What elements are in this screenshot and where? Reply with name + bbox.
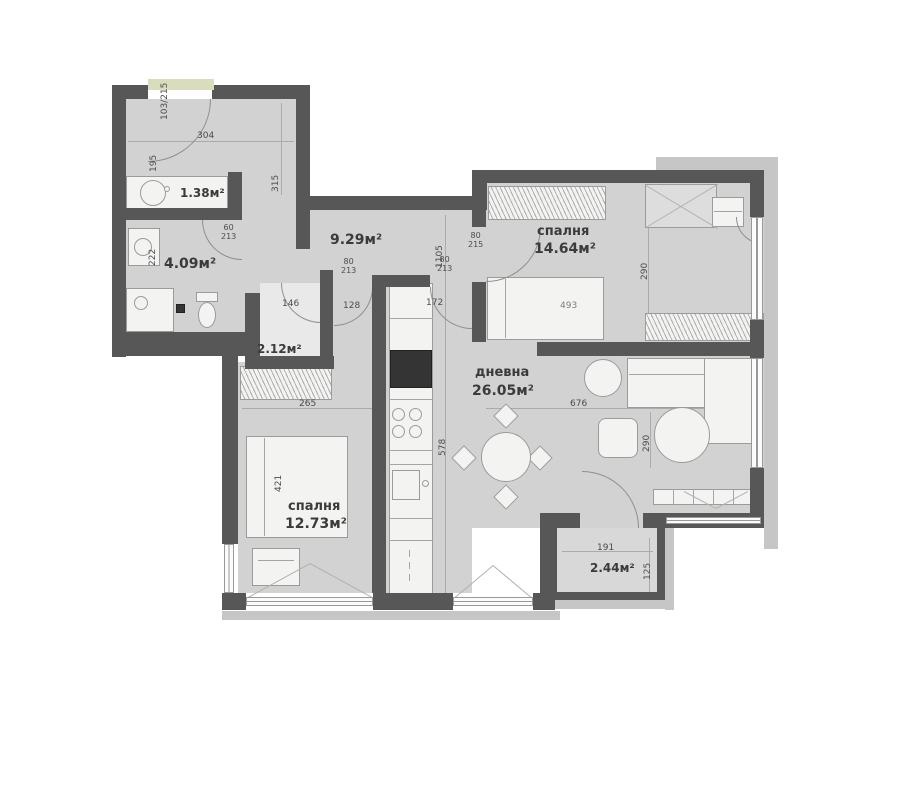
outer-band [656, 157, 778, 170]
lowboard-line [713, 489, 714, 505]
bedroom-left-area-label: 12.73м² [285, 516, 347, 532]
dimension-label: 265 [299, 400, 316, 409]
oven [390, 350, 432, 388]
dimension-label: 493 [560, 302, 577, 311]
burner-icon [409, 408, 422, 421]
wall [126, 208, 228, 220]
kitchen-wall [372, 275, 386, 593]
door-height: 213 [221, 233, 236, 241]
bed-pillow-line [264, 438, 265, 536]
wall [112, 85, 148, 99]
kitchen-sink [392, 470, 420, 500]
hallway-area-label: 9.29м² [330, 232, 382, 248]
wardrobe-strip-bedroom-right [645, 313, 764, 341]
counter-line [389, 540, 433, 541]
counter-line [389, 518, 433, 519]
bedroom-left-name-label: спалня [288, 499, 340, 514]
door-width: 80 [344, 258, 354, 266]
door-height: 215 [468, 241, 483, 249]
wall-bedroom-living-divider [537, 342, 764, 356]
window-bedroom-right [751, 217, 763, 320]
wall [643, 513, 663, 528]
window-bedroom-left [246, 597, 373, 606]
window-swing-mark [493, 565, 532, 598]
bedroom-right-name-label: спалня [537, 224, 589, 239]
wardrobe-bedroom-left [240, 366, 332, 400]
dimension-label: 191 [597, 544, 614, 553]
kitchen-counter [389, 283, 433, 596]
wall [472, 282, 486, 342]
door-size-label: 80 215 [468, 232, 483, 249]
wall [373, 593, 453, 610]
wall [112, 332, 247, 356]
wall [296, 196, 474, 210]
dimension-label: 290 [641, 263, 650, 280]
shower-tray [126, 288, 174, 332]
dimension-label: 128 [343, 302, 360, 311]
wall-pier [750, 170, 764, 217]
window-living-bottom [666, 517, 761, 524]
balcony-area-label: 2.44м² [590, 561, 635, 575]
door-width: 80 [471, 232, 481, 240]
outer-band [222, 611, 560, 620]
door-size-label: 60 213 [221, 224, 236, 241]
counter-line [389, 464, 433, 465]
sink-icon [140, 180, 166, 206]
shower-head-icon [134, 296, 148, 310]
bed-pillow-line [505, 279, 506, 338]
balcony-wall [549, 592, 665, 600]
armchair [598, 418, 638, 458]
wall [472, 170, 764, 183]
dimension-label: 146 [282, 300, 299, 309]
wall [222, 593, 246, 610]
sofa-cushion-line [629, 374, 705, 375]
bathroom-area-label: 4.09м² [164, 256, 216, 272]
coffee-table [654, 407, 710, 463]
plant-icon [584, 359, 622, 397]
dining-table [481, 432, 531, 482]
outer-band [549, 600, 674, 609]
sofa-vertical [704, 358, 754, 444]
door-size-label: 80 213 [437, 256, 452, 273]
fridge-line [389, 318, 433, 319]
burner-icon [409, 425, 422, 438]
wall [222, 338, 238, 544]
bedroom-right-area-label: 14.64м² [534, 241, 596, 257]
dimension-label: 290 [643, 435, 652, 452]
burner-icon [392, 408, 405, 421]
wall [296, 85, 310, 249]
wall [112, 85, 126, 357]
window-kitchen [453, 597, 533, 606]
lowboard-line [673, 489, 674, 505]
nightstand-line [258, 560, 294, 561]
toilet-tank [196, 292, 218, 302]
dimension-label: 578 [439, 439, 448, 456]
counter-line [389, 450, 433, 451]
counter-dash [409, 562, 410, 569]
entry-door-size-label: 103/215 [161, 83, 170, 120]
window-living [751, 358, 763, 468]
counter-dash [409, 574, 410, 581]
floor-drain-icon [176, 304, 185, 313]
entry-door-band [148, 79, 214, 90]
counter-dash [409, 550, 410, 557]
dimension-label: 315 [272, 175, 281, 192]
wall [228, 172, 242, 220]
side-table-line [714, 211, 742, 212]
burner-icon [392, 425, 405, 438]
dimension-label: 304 [197, 132, 214, 141]
door-height: 213 [437, 265, 452, 273]
dimension-label: 421 [275, 475, 284, 492]
door-width: 60 [224, 224, 234, 232]
outer-band [665, 528, 674, 610]
toilet-bowl-icon [198, 302, 216, 328]
wall [472, 183, 486, 227]
living-name-label: дневна [475, 365, 529, 380]
door-size-label: 80 213 [341, 258, 356, 275]
window-bedroom-left-side [224, 544, 234, 593]
wc-area-label: 1.38м² [180, 186, 225, 200]
dimension-label: 676 [570, 400, 587, 409]
dimension-label: 195 [150, 155, 159, 172]
dimension-label: 172 [426, 299, 443, 308]
wall [533, 593, 555, 610]
wardrobe-bedroom-right [488, 186, 606, 220]
dimension-label: 222 [149, 249, 158, 266]
faucet-icon [164, 186, 170, 192]
balcony-wall [549, 528, 557, 600]
dim-line-315 [281, 103, 282, 195]
living-area-label: 26.05м² [472, 383, 534, 399]
closet-area-label: 2.12м² [257, 342, 302, 356]
door-width: 80 [440, 256, 450, 264]
dimension-label: 125 [644, 563, 653, 580]
kitchen-faucet-icon [422, 480, 429, 487]
floor-plan: 1.38м² 4.09м² 9.29м² спалня 14.64м² 2.12… [0, 0, 904, 787]
balcony-wall [657, 528, 665, 600]
counter-line [389, 399, 433, 400]
closet-wall [320, 270, 333, 369]
outer-band [764, 157, 778, 549]
door-height: 213 [341, 267, 356, 275]
